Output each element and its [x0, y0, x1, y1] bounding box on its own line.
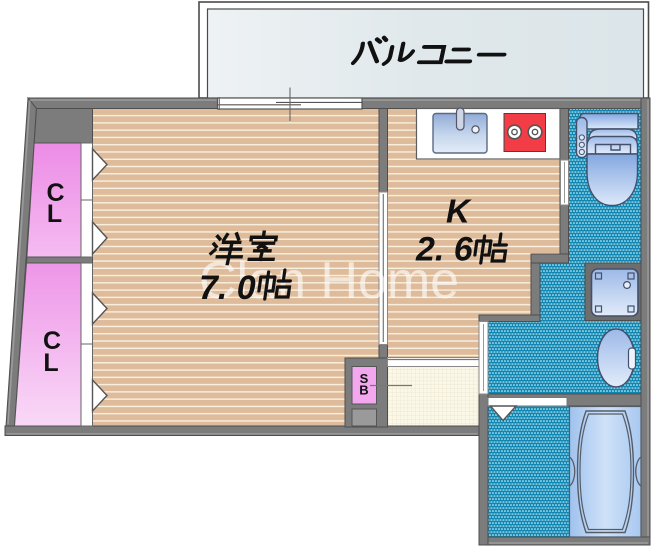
- svg-text:2. 6: 2. 6: [415, 231, 474, 269]
- svg-text:B: B: [359, 383, 368, 398]
- svg-text:L: L: [43, 349, 58, 377]
- svg-text:L: L: [47, 200, 62, 228]
- svg-text:K: K: [446, 193, 472, 230]
- svg-text:7. 0: 7. 0: [199, 269, 256, 307]
